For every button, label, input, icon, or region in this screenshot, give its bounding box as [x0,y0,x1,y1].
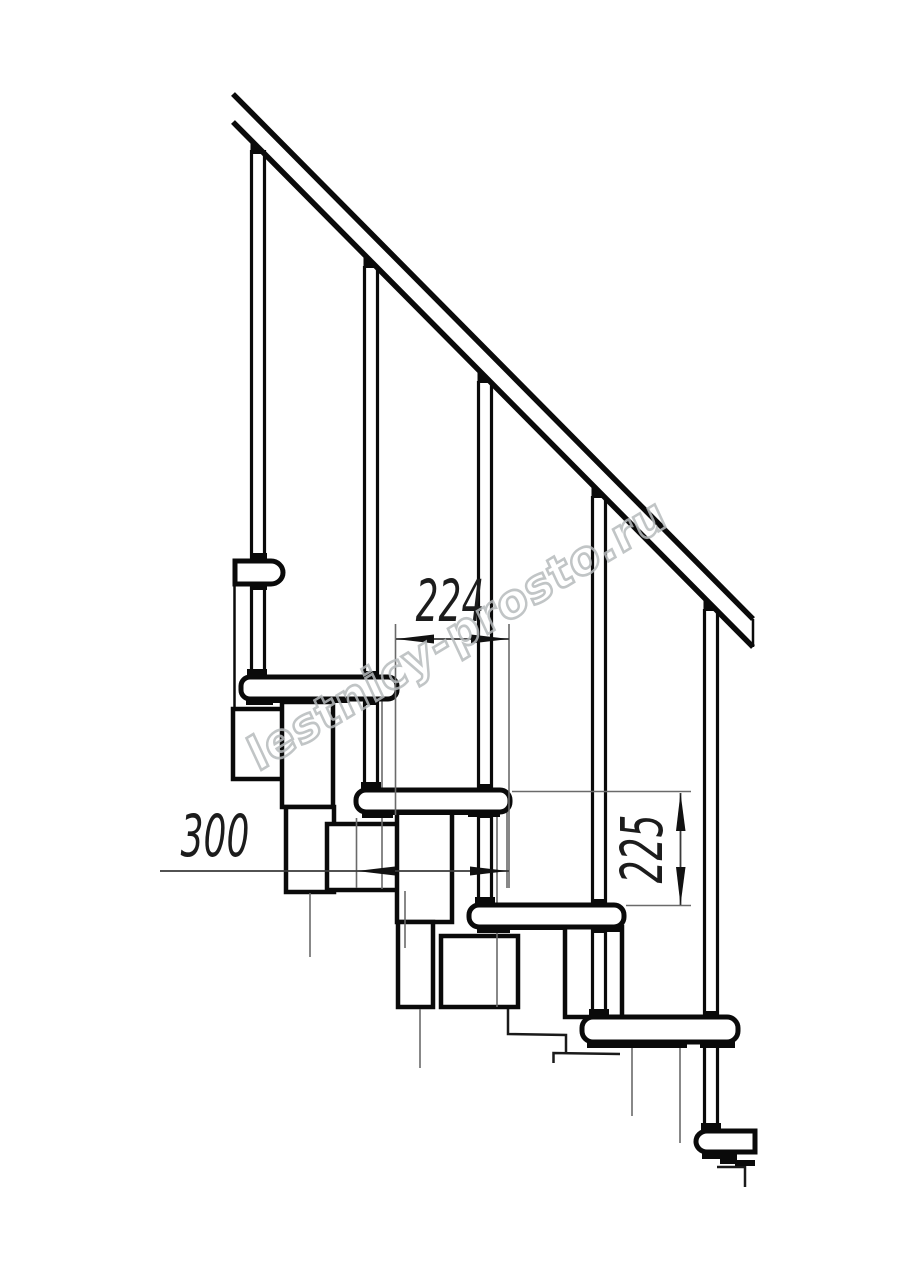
step-4 [582,1017,738,1042]
step-upper-cut [235,561,283,584]
dimension-label-225: 225 [609,815,676,884]
step-2 [356,790,510,812]
stringer-module [327,824,403,890]
stringer-module [441,936,518,1007]
step-3 [469,905,624,927]
baluster-1 [252,150,265,670]
step-5-cut [696,1131,755,1152]
dimension-label-300: 300 [181,803,250,870]
staircase-technical-drawing: 224 300 225 lestnicy-prosto.ru [0,0,914,1280]
stringer-module [398,922,433,1007]
watermark-text: lestnicy-prosto.ru [240,486,674,782]
